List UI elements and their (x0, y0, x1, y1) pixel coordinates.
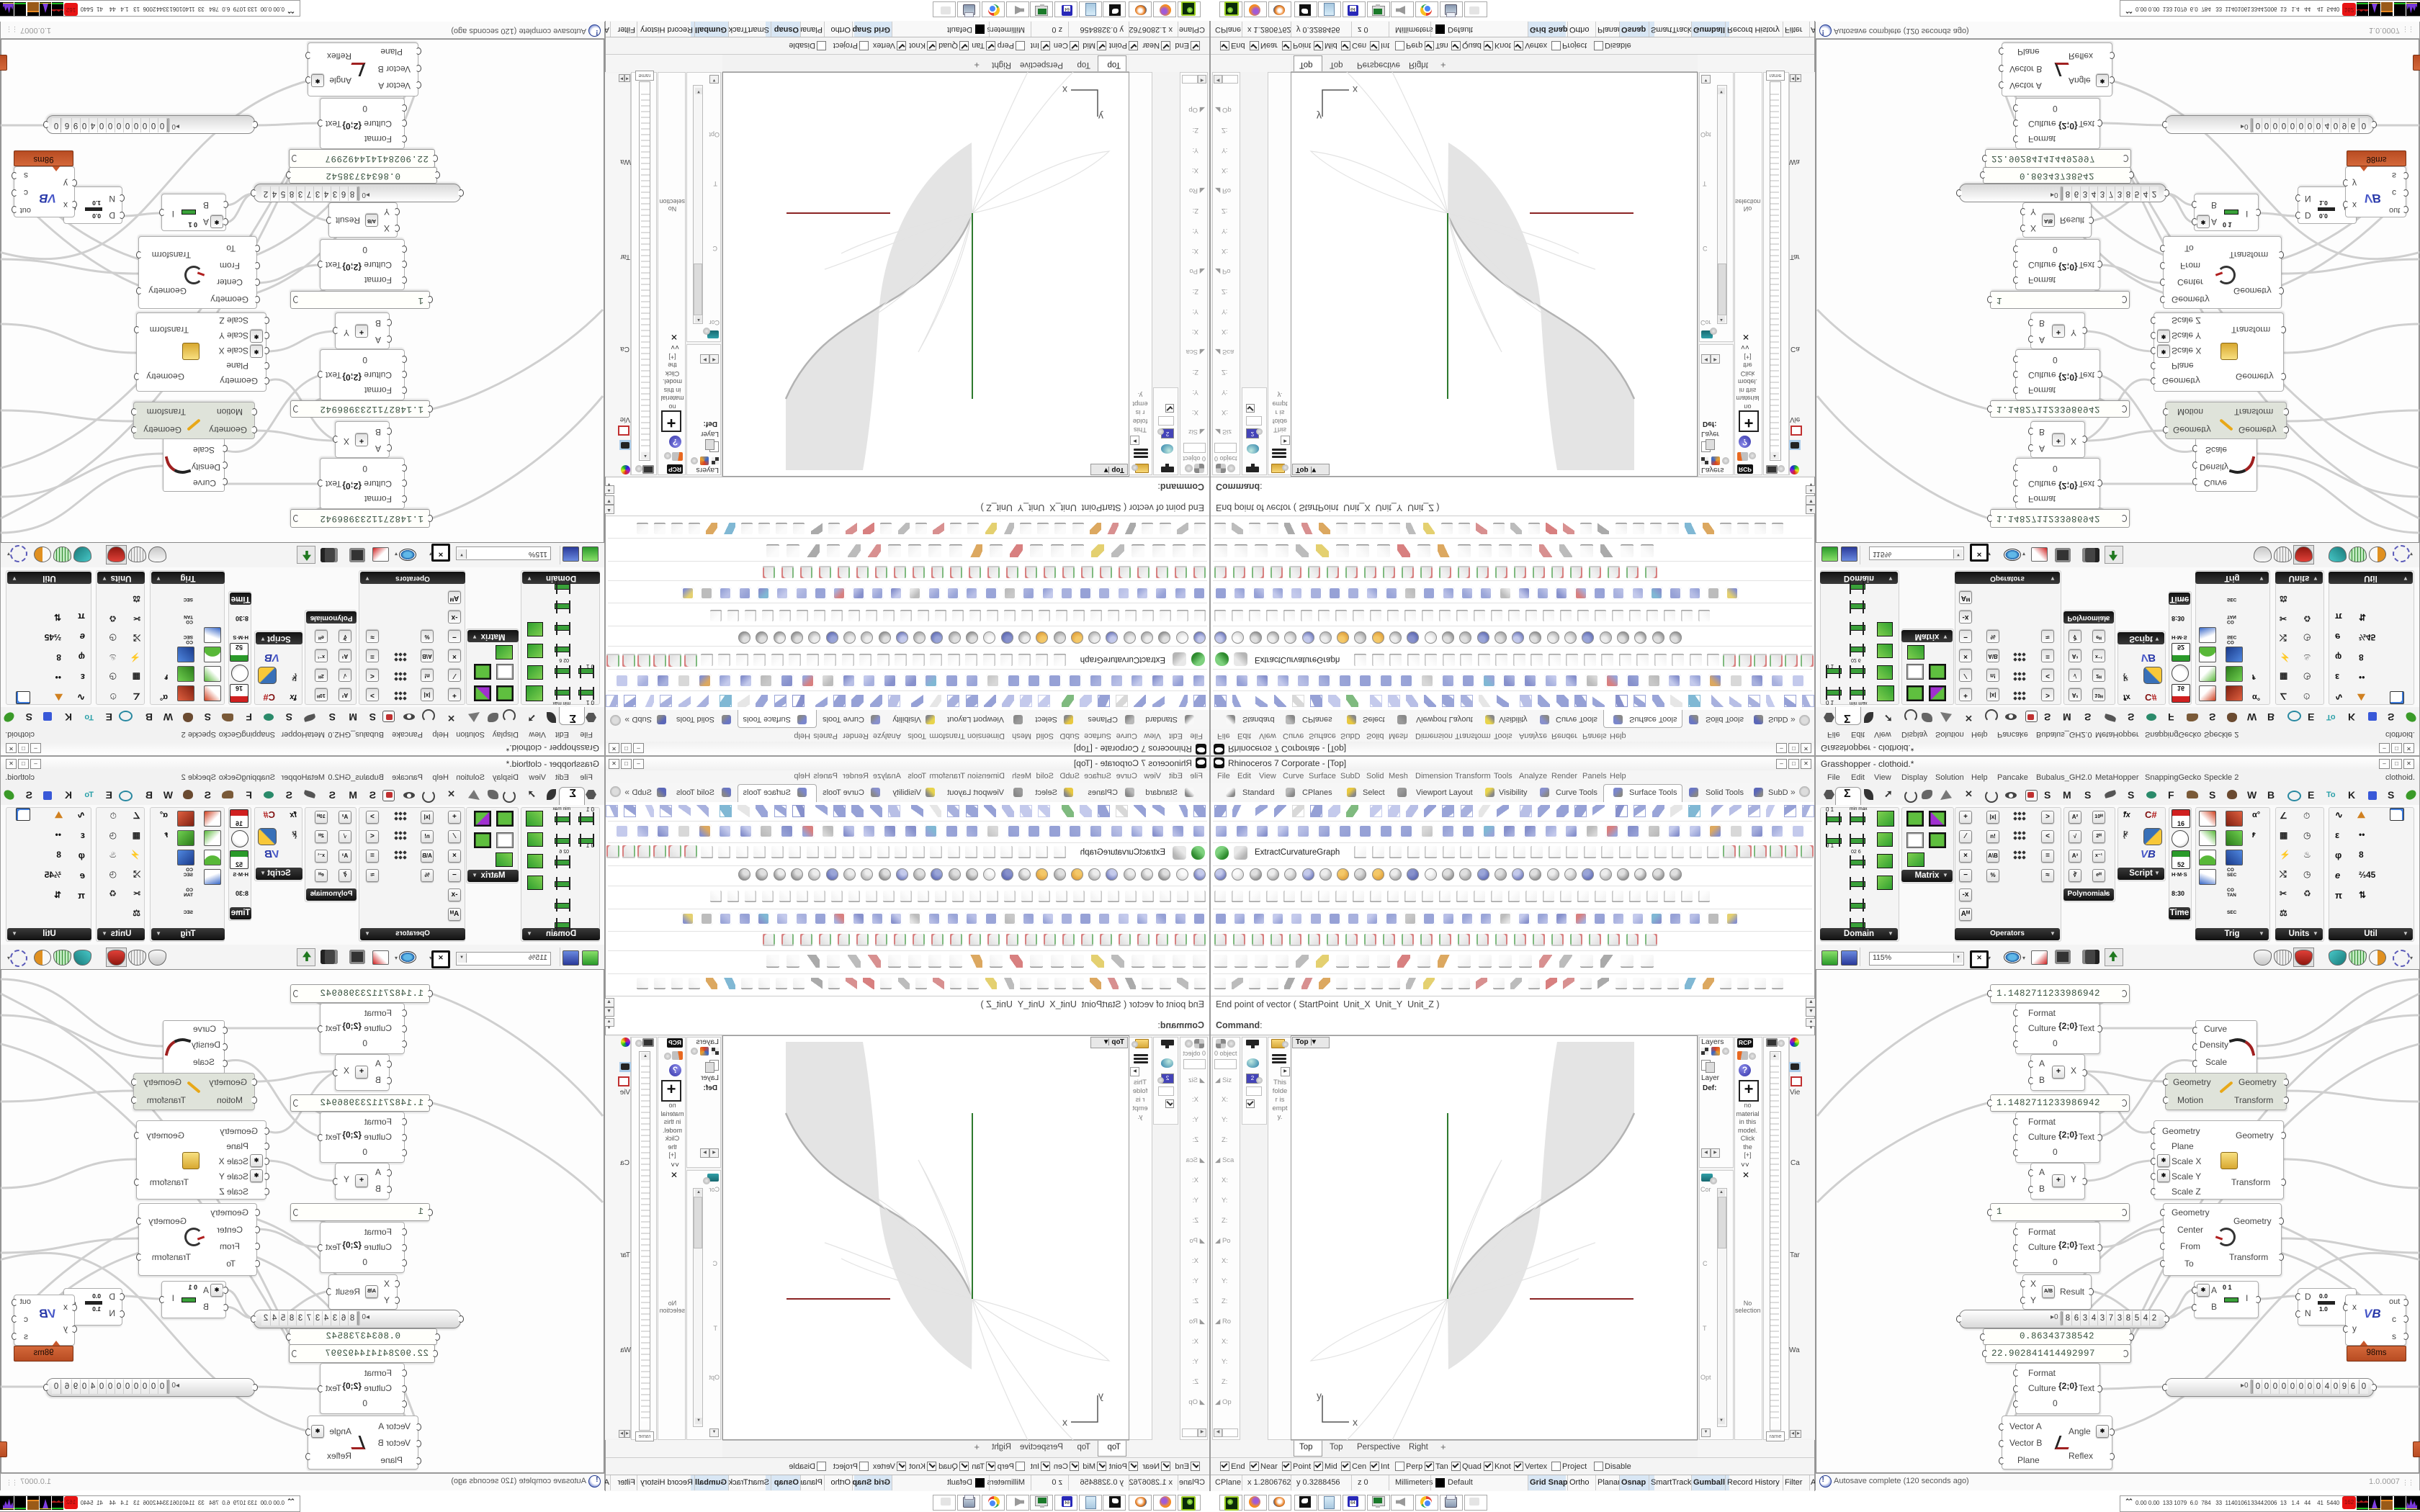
svg-text:y: y (1317, 1390, 1322, 1401)
svg-text:y: y (1317, 111, 1322, 122)
svg-text:x: x (1353, 84, 1358, 96)
svg-text:y: y (1098, 1390, 1103, 1401)
svg-text:x: x (1062, 1416, 1067, 1428)
svg-text:x: x (1353, 1416, 1358, 1428)
svg-text:x: x (1062, 84, 1067, 96)
svg-text:y: y (1098, 111, 1103, 122)
